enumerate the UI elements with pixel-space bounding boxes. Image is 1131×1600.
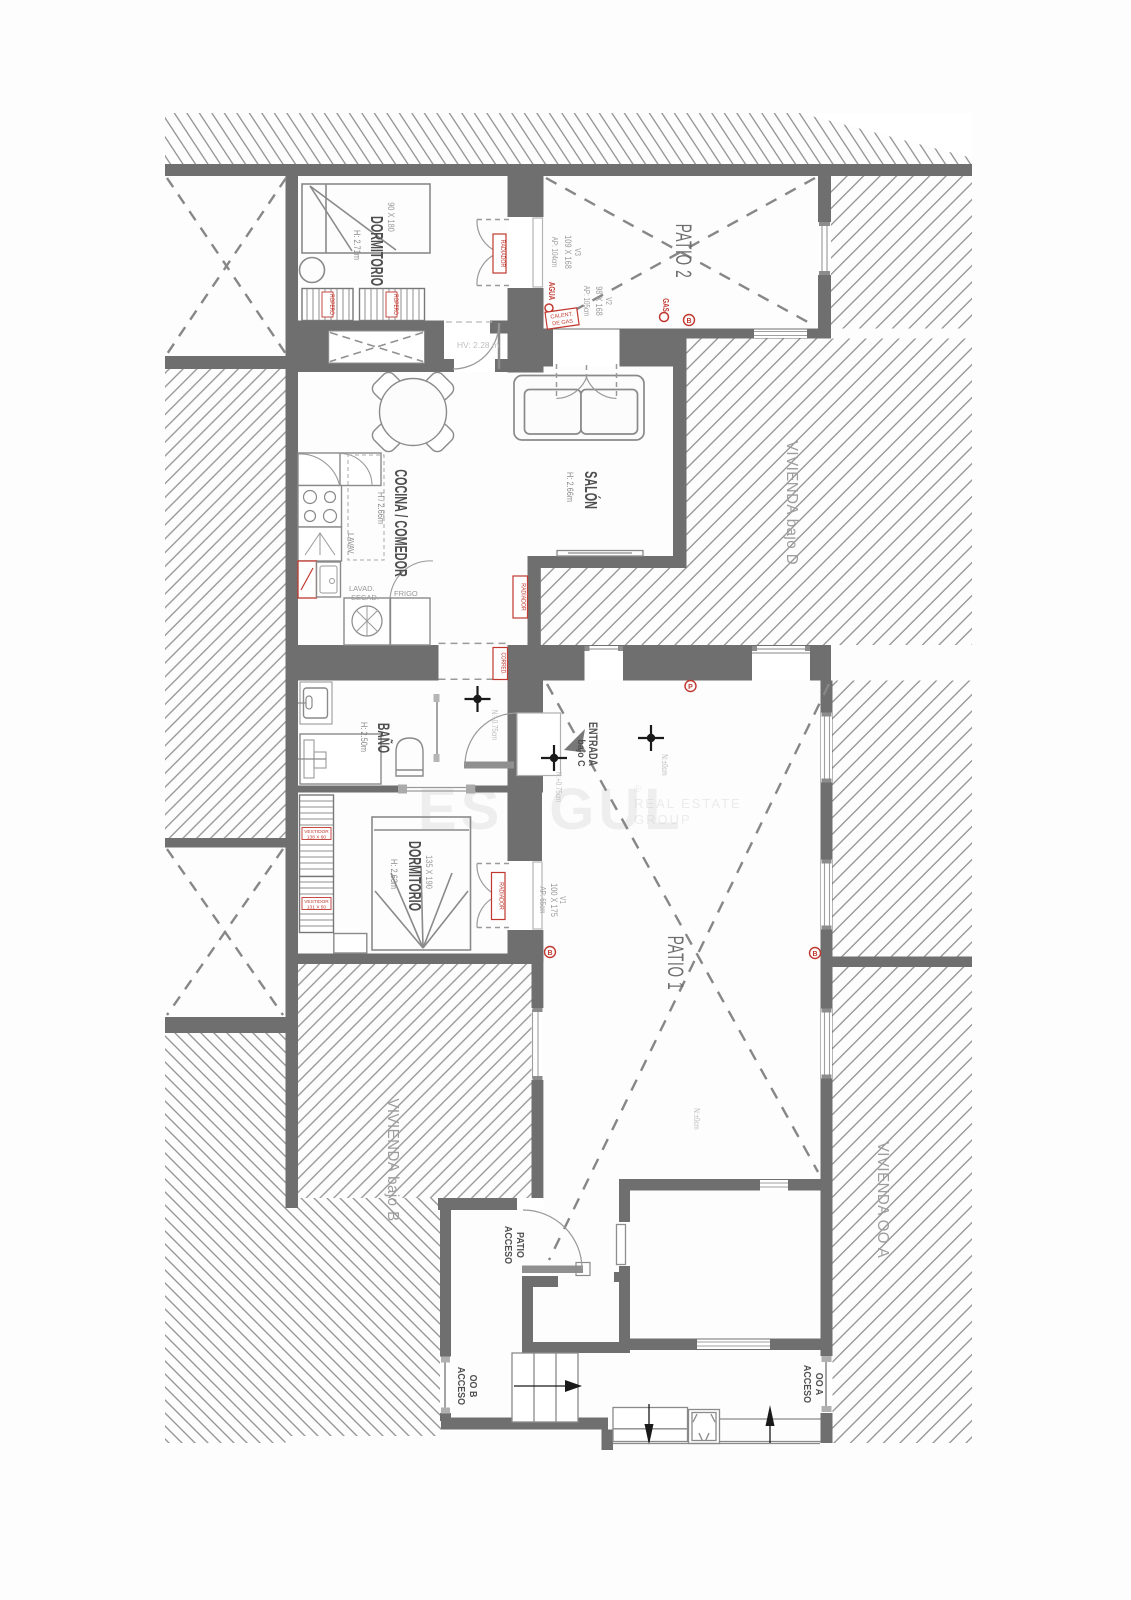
svg-text:98 X 168: 98 X 168	[594, 286, 605, 316]
svg-text:PATIO 2: PATIO 2	[671, 224, 696, 279]
svg-text:GROUP: GROUP	[634, 812, 692, 827]
svg-text:N:+0.75cm: N:+0.75cm	[554, 772, 563, 802]
svg-text:N:+0.75cm: N:+0.75cm	[490, 710, 499, 740]
svg-text:ACCESO: ACCESO	[801, 1365, 813, 1404]
svg-text:HV: 2.28 m: HV: 2.28 m	[457, 340, 499, 350]
svg-text:H / 2.66m: H / 2.66m	[376, 492, 387, 524]
svg-text:LAVAV.: LAVAV.	[346, 533, 356, 555]
svg-text:100 X 175: 100 X 175	[549, 883, 560, 917]
svg-text:CORRED.: CORRED.	[499, 652, 506, 675]
svg-text:B: B	[686, 318, 691, 325]
svg-text:VESTIDOR: VESTIDOR	[304, 899, 329, 905]
svg-text:138 X 60: 138 X 60	[307, 835, 327, 841]
svg-text:bajo C: bajo C	[575, 739, 587, 766]
svg-text:SECAD.: SECAD.	[351, 593, 379, 602]
svg-text:®: ®	[634, 784, 642, 795]
svg-text:H: 2.50m: H: 2.50m	[359, 722, 370, 752]
svg-text:ACCESO: ACCESO	[502, 1226, 514, 1265]
svg-text:H: 2.63m: H: 2.63m	[389, 859, 400, 889]
svg-text:H: 2.71m: H: 2.71m	[352, 230, 363, 260]
svg-text:AP: 104cm: AP: 104cm	[550, 237, 559, 267]
svg-text:VIVIENDA OO A: VIVIENDA OO A	[874, 1142, 891, 1259]
svg-text:H: 2.66m: H: 2.66m	[565, 472, 576, 502]
svg-text:N:±0cm: N:±0cm	[660, 754, 669, 775]
svg-text:VESTIDOR: VESTIDOR	[304, 829, 329, 835]
svg-text:AP: 65cm: AP: 65cm	[538, 887, 547, 914]
svg-text:OO A: OO A	[813, 1373, 825, 1395]
svg-text:135 X 190: 135 X 190	[424, 855, 435, 889]
svg-text:AP: 105cm: AP: 105cm	[582, 286, 591, 316]
svg-text:RADIADOR: RADIADOR	[497, 882, 504, 909]
svg-text:B: B	[812, 951, 817, 958]
svg-text:PATIO: PATIO	[514, 1232, 526, 1258]
svg-text:109 X 168: 109 X 168	[563, 235, 574, 269]
svg-text:AGUA: AGUA	[547, 282, 556, 300]
svg-text:BAÑO: BAÑO	[374, 723, 395, 753]
svg-text:B: B	[547, 950, 552, 957]
svg-text:P: P	[688, 684, 693, 691]
svg-text:90 X 180: 90 X 180	[386, 202, 397, 232]
svg-text:VIVIENDA bajo D: VIVIENDA bajo D	[783, 441, 800, 565]
svg-text:ROPERO: ROPERO	[328, 294, 335, 315]
svg-text:131 X 50: 131 X 50	[307, 905, 327, 911]
svg-text:VIVIENDA bajo B: VIVIENDA bajo B	[384, 1098, 401, 1221]
svg-text:DORMITORIO: DORMITORIO	[404, 841, 423, 911]
svg-text:FRIGO: FRIGO	[394, 589, 418, 598]
svg-text:COCINA / COMEDOR: COCINA / COMEDOR	[390, 469, 409, 577]
svg-text:REAL ESTATE: REAL ESTATE	[634, 796, 742, 811]
svg-text:RADIADOR: RADIADOR	[499, 240, 506, 267]
svg-text:RADIADOR: RADIADOR	[519, 583, 526, 610]
svg-text:PATIO 1: PATIO 1	[663, 936, 688, 991]
svg-text:ROPERO: ROPERO	[392, 294, 399, 315]
svg-text:OO B: OO B	[467, 1375, 479, 1398]
svg-text:GAS: GAS	[661, 298, 670, 312]
svg-text:DORMITORIO: DORMITORIO	[366, 216, 385, 286]
svg-text:LAVAD.: LAVAD.	[349, 584, 375, 593]
svg-text:N:±0cm: N:±0cm	[692, 1108, 701, 1129]
svg-text:ENTRADA: ENTRADA	[586, 722, 600, 766]
svg-text:SALÓN: SALÓN	[580, 471, 602, 509]
svg-text:ACCESO: ACCESO	[455, 1367, 467, 1406]
